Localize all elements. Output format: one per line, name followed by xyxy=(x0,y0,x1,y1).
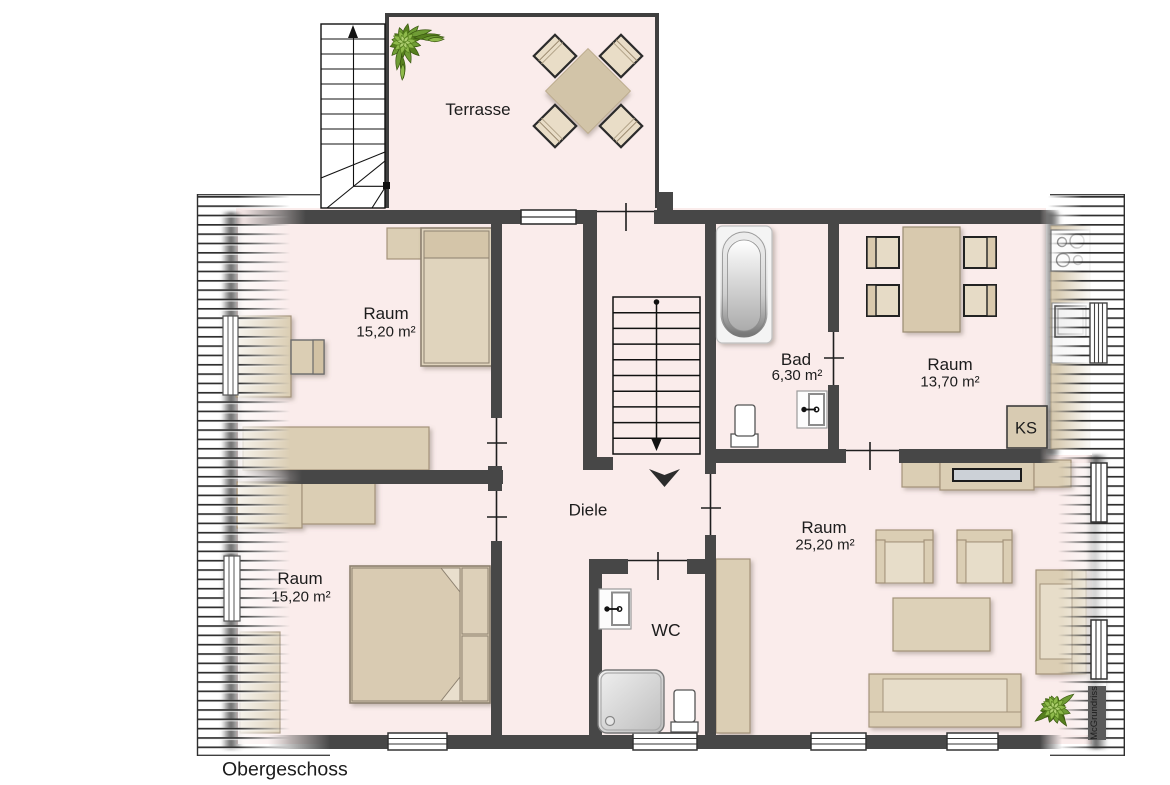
svg-text:Terrasse: Terrasse xyxy=(445,100,510,119)
svg-text:McGrundriss: McGrundriss xyxy=(1089,686,1100,740)
svg-text:Diele: Diele xyxy=(569,501,608,520)
svg-text:Raum: Raum xyxy=(363,304,408,323)
svg-text:25,20 m²: 25,20 m² xyxy=(795,537,854,554)
svg-text:Raum: Raum xyxy=(927,355,972,374)
svg-text:15,20 m²: 15,20 m² xyxy=(271,589,330,606)
svg-text:13,70 m²: 13,70 m² xyxy=(920,374,979,391)
svg-text:Raum: Raum xyxy=(801,518,846,537)
svg-text:Obergeschoss: Obergeschoss xyxy=(222,759,348,781)
svg-text:Raum: Raum xyxy=(277,569,322,588)
svg-text:WC: WC xyxy=(651,620,680,640)
svg-text:15,20 m²: 15,20 m² xyxy=(356,324,415,341)
svg-text:KS: KS xyxy=(1015,420,1037,438)
svg-text:6,30 m²: 6,30 m² xyxy=(772,367,823,384)
